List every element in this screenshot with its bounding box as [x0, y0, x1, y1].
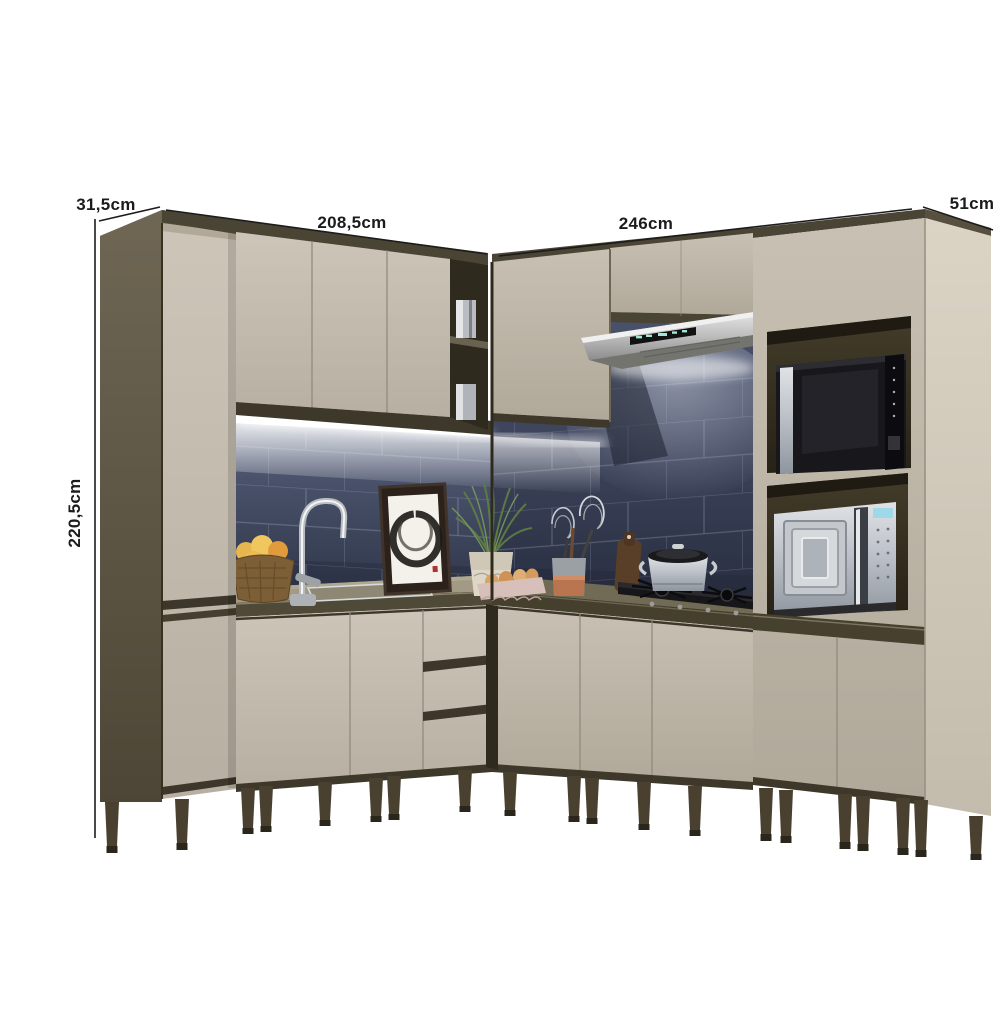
right-width-dimension-label: 246cm — [619, 214, 673, 233]
product-dimension-diagram: 31,5cm 208,5cm 246cm 51cm 220,5cm — [40, 16, 1000, 1016]
leg — [503, 772, 517, 816]
leg — [175, 799, 189, 850]
leg — [369, 778, 383, 822]
height-dimension-label: 220,5cm — [65, 478, 84, 547]
fruit-basket — [232, 535, 294, 603]
right-depth-dimension-label: 51cm — [950, 194, 995, 213]
tall-cabinet-left — [100, 210, 236, 802]
leg — [896, 798, 910, 855]
base-cabinets-left — [236, 605, 492, 792]
leg — [688, 786, 702, 836]
corner-open-shelf — [450, 259, 488, 430]
left-width-dimension-label: 208,5cm — [317, 213, 386, 232]
left-depth-dimension-label: 31,5cm — [76, 195, 135, 214]
microwave-oven-upper — [767, 316, 911, 474]
leg — [105, 802, 119, 853]
leg — [567, 776, 581, 822]
leg — [914, 800, 928, 857]
leg — [259, 786, 273, 832]
leg — [838, 794, 852, 849]
leg — [318, 782, 332, 826]
side-panel-right — [925, 209, 991, 816]
picture-frame — [378, 482, 452, 595]
microwave-oven-lower — [767, 473, 908, 618]
leg — [759, 788, 773, 841]
leg — [969, 816, 983, 860]
base-cabinets-right — [486, 604, 753, 790]
leg — [387, 776, 401, 820]
leg — [458, 770, 472, 812]
tall-cabinet-tower — [753, 209, 991, 816]
leg — [241, 788, 255, 834]
leg — [779, 790, 793, 843]
leg — [856, 796, 870, 851]
leg — [637, 782, 651, 830]
kitchen-illustration: 31,5cm 208,5cm 246cm 51cm 220,5cm — [40, 16, 1000, 1016]
leg — [585, 778, 599, 824]
